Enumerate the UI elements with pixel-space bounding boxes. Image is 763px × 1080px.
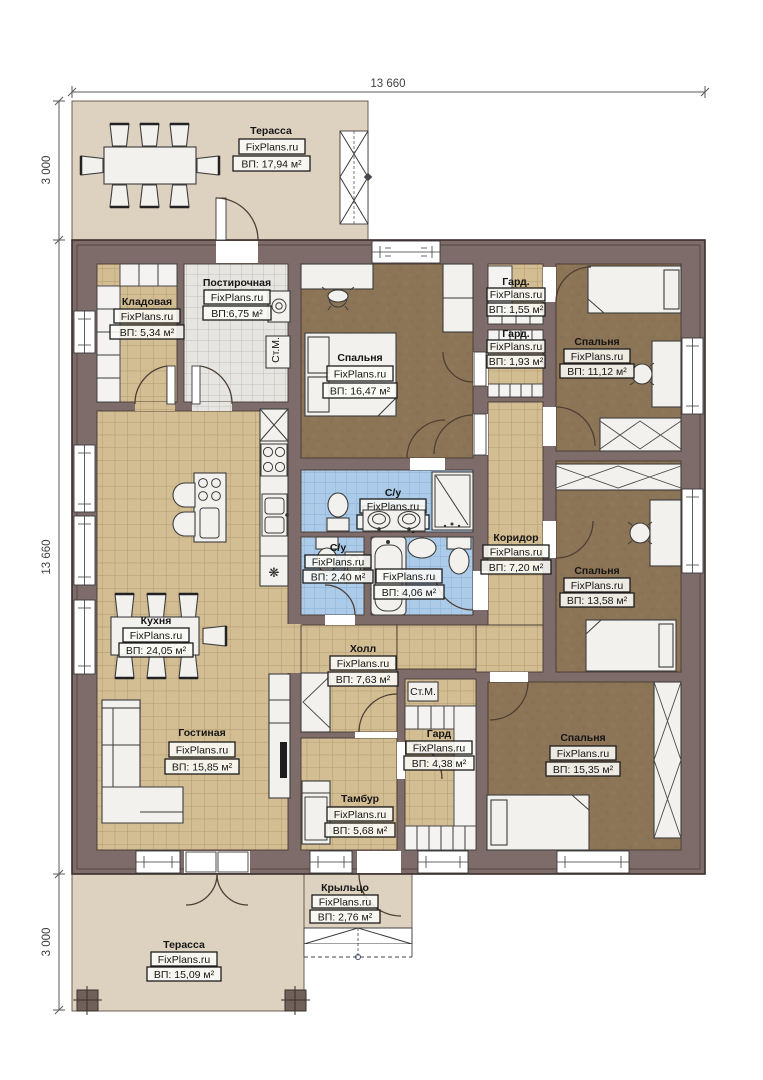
svg-text:Гард.: Гард. bbox=[502, 328, 529, 340]
svg-text:FixPlans.ru: FixPlans.ru bbox=[490, 341, 543, 353]
svg-text:Кухня: Кухня bbox=[141, 615, 172, 627]
svg-text:FixPlans.ru: FixPlans.ru bbox=[337, 658, 390, 670]
svg-text:3 000: 3 000 bbox=[41, 156, 53, 185]
svg-text:ВП: 13,58 м²: ВП: 13,58 м² bbox=[567, 595, 628, 607]
svg-text:13 660: 13 660 bbox=[41, 539, 53, 574]
svg-text:ВП: 7,63 м²: ВП: 7,63 м² bbox=[336, 674, 391, 686]
svg-text:FixPlans.ru: FixPlans.ru bbox=[211, 292, 264, 304]
svg-text:FixPlans.ru: FixPlans.ru bbox=[490, 289, 543, 301]
svg-text:FixPlans.ru: FixPlans.ru bbox=[571, 580, 624, 592]
svg-text:Тамбур: Тамбур bbox=[341, 793, 379, 805]
svg-text:FixPlans.ru: FixPlans.ru bbox=[246, 142, 299, 154]
svg-text:С/у: С/у bbox=[330, 542, 347, 554]
svg-text:FixPlans.ru: FixPlans.ru bbox=[334, 369, 387, 381]
svg-text:ВП: 7,20 м²: ВП: 7,20 м² bbox=[489, 562, 544, 574]
svg-text:FixPlans.ru: FixPlans.ru bbox=[334, 809, 387, 821]
svg-text:ВП: 1,93 м²: ВП: 1,93 м² bbox=[489, 356, 544, 368]
svg-text:ВП: 1,55 м²: ВП: 1,55 м² bbox=[489, 304, 544, 316]
svg-text:ВП: 2,76 м²: ВП: 2,76 м² bbox=[318, 912, 373, 924]
svg-text:Терасса: Терасса bbox=[250, 125, 292, 137]
svg-text:ВП: 11,12 м²: ВП: 11,12 м² bbox=[567, 366, 627, 378]
svg-text:Спальня: Спальня bbox=[574, 336, 619, 348]
svg-text:FixPlans.ru: FixPlans.ru bbox=[319, 897, 372, 909]
svg-text:13 660: 13 660 bbox=[370, 78, 405, 90]
svg-text:FixPlans.ru: FixPlans.ru bbox=[121, 311, 174, 323]
svg-text:Ст.М.: Ст.М. bbox=[270, 337, 282, 363]
svg-text:FixPlans.ru: FixPlans.ru bbox=[413, 743, 466, 755]
svg-text:ВП: 4,38 м²: ВП: 4,38 м² bbox=[412, 758, 467, 770]
svg-text:❋: ❋ bbox=[269, 565, 280, 580]
svg-text:FixPlans.ru: FixPlans.ru bbox=[571, 351, 624, 363]
svg-text:Терасса: Терасса bbox=[163, 939, 205, 951]
svg-text:Кладовая: Кладовая bbox=[122, 296, 172, 308]
svg-text:FixPlans.ru: FixPlans.ru bbox=[557, 748, 610, 760]
svg-text:Крыльцо: Крыльцо bbox=[321, 882, 369, 894]
svg-text:ВП:6,75 м²: ВП:6,75 м² bbox=[211, 308, 263, 320]
svg-text:ВП: 17,94 м²: ВП: 17,94 м² bbox=[241, 159, 302, 171]
svg-text:FixPlans.ru: FixPlans.ru bbox=[158, 954, 211, 966]
svg-text:ВП: 5,68 м²: ВП: 5,68 м² bbox=[333, 825, 388, 837]
svg-text:FixPlans.ru: FixPlans.ru bbox=[176, 745, 229, 757]
svg-text:ВП: 24,05 м²: ВП: 24,05 м² bbox=[126, 645, 187, 657]
svg-text:ВП: 15,35 м²: ВП: 15,35 м² bbox=[553, 764, 614, 776]
svg-text:Гостиная: Гостиная bbox=[178, 727, 225, 739]
svg-text:Гард: Гард bbox=[427, 728, 452, 740]
svg-text:Гард.: Гард. bbox=[502, 276, 529, 288]
svg-text:Коридор: Коридор bbox=[493, 532, 538, 544]
svg-text:3 000: 3 000 bbox=[41, 928, 53, 957]
svg-text:FixPlans.ru: FixPlans.ru bbox=[312, 557, 365, 569]
svg-text:Ст.М.: Ст.М. bbox=[410, 686, 436, 698]
svg-text:Холл: Холл bbox=[350, 643, 376, 655]
svg-text:Спальня: Спальня bbox=[337, 352, 382, 364]
svg-text:Постирочная: Постирочная bbox=[203, 277, 271, 289]
svg-text:ВП: 4,06 м²: ВП: 4,06 м² bbox=[382, 587, 437, 599]
svg-text:ВП: 15,85 м²: ВП: 15,85 м² bbox=[172, 762, 233, 774]
svg-text:ВП: 16,47 м²: ВП: 16,47 м² bbox=[330, 386, 391, 398]
svg-text:С/у: С/у bbox=[385, 487, 402, 499]
svg-text:Спальня: Спальня bbox=[560, 732, 605, 744]
svg-text:FixPlans.ru: FixPlans.ru bbox=[490, 547, 543, 559]
svg-text:FixPlans.ru: FixPlans.ru bbox=[130, 630, 183, 642]
svg-text:FixPlans.ru: FixPlans.ru bbox=[383, 571, 436, 583]
svg-text:Спальня: Спальня bbox=[574, 565, 619, 577]
svg-text:ВП: 15,09 м²: ВП: 15,09 м² bbox=[154, 969, 215, 981]
svg-text:ВП: 5,34 м²: ВП: 5,34 м² bbox=[120, 327, 175, 339]
svg-text:ВП: 2,40 м²: ВП: 2,40 м² bbox=[311, 572, 366, 584]
